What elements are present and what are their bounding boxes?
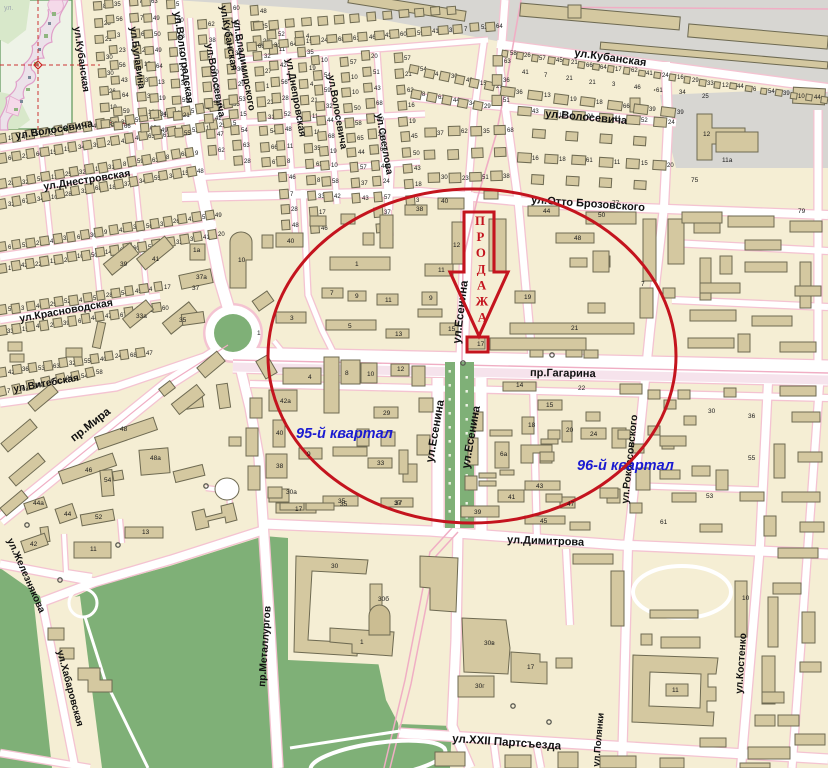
svg-text:18: 18 bbox=[528, 422, 536, 429]
svg-text:11: 11 bbox=[672, 687, 679, 694]
svg-text:52: 52 bbox=[641, 118, 648, 124]
svg-text:О: О bbox=[476, 246, 486, 260]
svg-text:51: 51 bbox=[503, 98, 510, 104]
svg-text:20: 20 bbox=[218, 232, 225, 238]
svg-text:35: 35 bbox=[114, 2, 121, 8]
svg-text:64: 64 bbox=[156, 64, 163, 70]
svg-text:30: 30 bbox=[331, 563, 339, 570]
svg-text:18: 18 bbox=[415, 182, 422, 188]
svg-text:48а: 48а bbox=[150, 455, 161, 462]
svg-text:18: 18 bbox=[596, 100, 603, 106]
svg-text:63: 63 bbox=[151, 0, 158, 5]
svg-text:17: 17 bbox=[477, 341, 485, 348]
svg-text:46: 46 bbox=[321, 226, 328, 232]
svg-text:33: 33 bbox=[377, 460, 385, 467]
svg-text:41: 41 bbox=[522, 70, 529, 76]
svg-text:12: 12 bbox=[397, 366, 405, 373]
svg-text:30: 30 bbox=[708, 408, 716, 415]
svg-text:44: 44 bbox=[814, 95, 821, 101]
svg-text:6а: 6а bbox=[500, 451, 508, 458]
svg-text:30б: 30б bbox=[378, 595, 389, 603]
svg-text:44: 44 bbox=[737, 84, 744, 90]
svg-text:10: 10 bbox=[331, 163, 338, 169]
svg-text:Р: Р bbox=[476, 230, 484, 244]
svg-text:39: 39 bbox=[474, 509, 482, 516]
svg-text:А: А bbox=[478, 311, 488, 325]
svg-text:Д: Д bbox=[477, 262, 486, 276]
svg-text:57: 57 bbox=[350, 60, 357, 66]
svg-text:33: 33 bbox=[707, 81, 714, 87]
svg-text:54: 54 bbox=[241, 128, 248, 134]
svg-text:ул.: ул. bbox=[4, 5, 13, 12]
svg-text:48: 48 bbox=[574, 235, 582, 242]
svg-text:А: А bbox=[477, 278, 487, 292]
svg-text:56: 56 bbox=[116, 17, 123, 23]
svg-text:11а: 11а bbox=[722, 157, 733, 164]
svg-text:19: 19 bbox=[570, 97, 577, 103]
svg-text:11: 11 bbox=[438, 267, 445, 274]
svg-text:15: 15 bbox=[546, 402, 554, 409]
svg-text:66: 66 bbox=[623, 104, 630, 110]
svg-text:49: 49 bbox=[215, 213, 222, 219]
svg-text:17: 17 bbox=[164, 285, 171, 291]
svg-text:59: 59 bbox=[123, 109, 130, 115]
svg-text:24: 24 bbox=[590, 431, 598, 438]
svg-text:57: 57 bbox=[384, 195, 391, 201]
svg-text:61: 61 bbox=[656, 88, 663, 94]
svg-text:21: 21 bbox=[183, 113, 190, 119]
svg-text:62: 62 bbox=[218, 148, 225, 154]
svg-text:13: 13 bbox=[395, 331, 403, 338]
svg-text:13: 13 bbox=[142, 529, 150, 536]
svg-text:62: 62 bbox=[208, 22, 215, 28]
svg-text:79: 79 bbox=[798, 208, 806, 215]
svg-text:29: 29 bbox=[692, 78, 699, 84]
svg-text:30: 30 bbox=[106, 55, 113, 61]
svg-text:18: 18 bbox=[559, 157, 566, 163]
svg-text:48: 48 bbox=[260, 9, 267, 15]
svg-text:53: 53 bbox=[706, 493, 714, 500]
svg-text:60: 60 bbox=[162, 306, 169, 312]
svg-text:20: 20 bbox=[667, 163, 674, 169]
svg-text:56: 56 bbox=[119, 63, 126, 69]
svg-text:11: 11 bbox=[385, 297, 392, 304]
svg-text:10: 10 bbox=[352, 90, 359, 96]
svg-text:49: 49 bbox=[153, 16, 160, 22]
svg-text:23: 23 bbox=[462, 176, 469, 182]
svg-text:66: 66 bbox=[124, 124, 131, 130]
svg-text:5: 5 bbox=[348, 323, 352, 330]
svg-text:42: 42 bbox=[30, 541, 38, 548]
svg-text:1: 1 bbox=[355, 261, 359, 268]
svg-text:49: 49 bbox=[155, 48, 162, 54]
svg-text:37: 37 bbox=[437, 131, 444, 137]
svg-text:44а: 44а bbox=[33, 500, 44, 507]
svg-text:1: 1 bbox=[360, 639, 364, 646]
svg-text:40: 40 bbox=[276, 430, 284, 437]
svg-text:22: 22 bbox=[578, 385, 586, 392]
svg-text:9: 9 bbox=[307, 451, 311, 458]
svg-text:57: 57 bbox=[539, 56, 546, 62]
svg-text:45: 45 bbox=[411, 134, 418, 140]
svg-text:57: 57 bbox=[404, 56, 411, 62]
svg-text:39: 39 bbox=[120, 261, 128, 268]
svg-text:57: 57 bbox=[360, 165, 367, 171]
svg-text:36: 36 bbox=[748, 413, 756, 420]
svg-text:24: 24 bbox=[668, 120, 675, 126]
svg-text:38: 38 bbox=[416, 206, 424, 213]
svg-text:19: 19 bbox=[524, 294, 532, 301]
svg-text:11: 11 bbox=[287, 144, 294, 150]
svg-text:11: 11 bbox=[90, 546, 97, 553]
svg-text:68: 68 bbox=[507, 128, 514, 134]
svg-text:15: 15 bbox=[240, 112, 247, 118]
svg-text:47: 47 bbox=[217, 132, 224, 138]
svg-text:30г: 30г bbox=[475, 683, 485, 690]
svg-text:21: 21 bbox=[589, 80, 596, 86]
svg-text:41: 41 bbox=[508, 494, 516, 501]
svg-text:17: 17 bbox=[527, 664, 535, 671]
svg-text:12: 12 bbox=[703, 131, 711, 138]
svg-text:48: 48 bbox=[197, 169, 204, 175]
svg-text:54: 54 bbox=[104, 477, 112, 484]
svg-text:50: 50 bbox=[154, 32, 161, 38]
svg-text:1: 1 bbox=[257, 330, 261, 337]
svg-text:41: 41 bbox=[152, 256, 160, 263]
svg-text:48: 48 bbox=[285, 127, 292, 133]
svg-text:16: 16 bbox=[532, 156, 539, 162]
svg-text:62: 62 bbox=[631, 68, 638, 74]
svg-text:61: 61 bbox=[660, 519, 668, 526]
svg-text:68: 68 bbox=[376, 101, 383, 107]
svg-text:45: 45 bbox=[556, 58, 563, 64]
svg-text:35: 35 bbox=[340, 501, 348, 508]
svg-text:21: 21 bbox=[571, 60, 578, 66]
svg-text:50: 50 bbox=[413, 151, 420, 157]
svg-text:4: 4 bbox=[308, 374, 312, 381]
svg-text:45: 45 bbox=[540, 518, 548, 525]
svg-text:15: 15 bbox=[641, 161, 648, 167]
svg-text:9: 9 bbox=[429, 295, 433, 302]
svg-text:62: 62 bbox=[461, 129, 468, 135]
svg-text:95-й квартал: 95-й квартал bbox=[296, 426, 393, 442]
svg-text:12: 12 bbox=[453, 242, 461, 249]
svg-text:16: 16 bbox=[677, 75, 684, 81]
svg-text:58: 58 bbox=[96, 370, 103, 376]
svg-text:51: 51 bbox=[482, 175, 489, 181]
svg-text:26: 26 bbox=[524, 53, 531, 59]
svg-text:48: 48 bbox=[292, 223, 299, 229]
svg-text:39: 39 bbox=[649, 107, 656, 113]
svg-text:10: 10 bbox=[367, 371, 375, 378]
svg-text:10: 10 bbox=[351, 75, 358, 81]
svg-text:9: 9 bbox=[355, 293, 359, 300]
svg-text:37: 37 bbox=[395, 500, 403, 507]
svg-text:3: 3 bbox=[290, 315, 294, 322]
svg-text:30в: 30в bbox=[484, 640, 495, 647]
svg-text:28: 28 bbox=[291, 207, 298, 213]
svg-text:39: 39 bbox=[783, 91, 790, 97]
svg-text:64: 64 bbox=[496, 24, 503, 30]
svg-text:20: 20 bbox=[566, 427, 574, 434]
svg-text:29: 29 bbox=[484, 104, 491, 110]
svg-text:52: 52 bbox=[284, 112, 291, 118]
svg-text:47: 47 bbox=[567, 501, 575, 508]
svg-text:17: 17 bbox=[295, 506, 303, 513]
svg-text:48: 48 bbox=[120, 426, 128, 433]
svg-text:40: 40 bbox=[441, 198, 449, 205]
svg-text:пр.Гагарина: пр.Гагарина bbox=[530, 367, 597, 380]
svg-text:13: 13 bbox=[544, 93, 551, 99]
svg-text:65: 65 bbox=[357, 136, 364, 142]
svg-text:63: 63 bbox=[243, 143, 250, 149]
svg-text:43: 43 bbox=[536, 483, 544, 490]
svg-text:16: 16 bbox=[408, 103, 415, 109]
svg-text:38: 38 bbox=[276, 463, 284, 470]
svg-text:43: 43 bbox=[414, 166, 421, 172]
svg-text:25: 25 bbox=[702, 94, 709, 100]
svg-text:77: 77 bbox=[612, 200, 620, 207]
svg-text:10: 10 bbox=[742, 595, 750, 602]
svg-text:44: 44 bbox=[64, 511, 72, 518]
svg-text:Ж: Ж bbox=[476, 295, 489, 309]
svg-text:10: 10 bbox=[798, 94, 805, 100]
svg-text:43: 43 bbox=[121, 78, 128, 84]
svg-text:46: 46 bbox=[85, 467, 93, 474]
svg-text:20: 20 bbox=[371, 54, 378, 60]
svg-text:19: 19 bbox=[159, 96, 166, 102]
svg-text:17: 17 bbox=[615, 67, 622, 73]
svg-text:35: 35 bbox=[307, 50, 314, 56]
svg-text:28: 28 bbox=[244, 159, 251, 165]
svg-text:8: 8 bbox=[345, 370, 349, 377]
svg-text:64: 64 bbox=[122, 93, 129, 99]
svg-text:54: 54 bbox=[768, 89, 775, 95]
svg-text:52: 52 bbox=[95, 514, 103, 521]
svg-text:61: 61 bbox=[586, 158, 593, 164]
svg-text:12: 12 bbox=[722, 83, 729, 89]
svg-text:51: 51 bbox=[373, 70, 380, 76]
svg-text:36: 36 bbox=[503, 78, 510, 84]
svg-text:33а: 33а bbox=[136, 313, 147, 320]
svg-text:64: 64 bbox=[600, 65, 607, 71]
svg-text:14: 14 bbox=[516, 382, 524, 389]
svg-text:29: 29 bbox=[383, 410, 391, 417]
svg-text:60: 60 bbox=[233, 6, 240, 12]
svg-text:75: 75 bbox=[691, 177, 699, 184]
svg-text:43: 43 bbox=[362, 196, 369, 202]
svg-text:44: 44 bbox=[358, 150, 365, 156]
svg-text:10: 10 bbox=[321, 58, 328, 64]
svg-text:47: 47 bbox=[146, 351, 153, 357]
svg-text:42а: 42а bbox=[280, 398, 291, 405]
svg-text:15: 15 bbox=[448, 326, 456, 333]
svg-text:23: 23 bbox=[119, 48, 126, 54]
svg-text:41: 41 bbox=[646, 71, 653, 77]
svg-text:1а: 1а bbox=[193, 247, 201, 254]
svg-text:17: 17 bbox=[319, 210, 326, 216]
svg-text:19: 19 bbox=[409, 119, 416, 125]
svg-text:30: 30 bbox=[441, 175, 448, 181]
svg-text:40: 40 bbox=[287, 238, 295, 245]
svg-text:38: 38 bbox=[503, 174, 510, 180]
svg-text:46: 46 bbox=[289, 175, 296, 181]
svg-text:35: 35 bbox=[483, 129, 490, 135]
svg-text:24: 24 bbox=[383, 179, 390, 185]
svg-text:7: 7 bbox=[330, 290, 334, 297]
svg-text:21: 21 bbox=[566, 76, 573, 82]
svg-text:10: 10 bbox=[238, 257, 246, 264]
svg-text:П: П bbox=[475, 214, 485, 228]
svg-text:35: 35 bbox=[179, 317, 187, 324]
svg-text:43: 43 bbox=[532, 109, 539, 115]
svg-text:37: 37 bbox=[361, 181, 368, 187]
svg-text:34: 34 bbox=[679, 90, 686, 96]
svg-text:55: 55 bbox=[748, 455, 756, 462]
svg-text:36: 36 bbox=[516, 90, 523, 96]
svg-text:43: 43 bbox=[374, 86, 381, 92]
svg-text:28: 28 bbox=[282, 96, 289, 102]
svg-text:11: 11 bbox=[614, 160, 621, 166]
svg-text:63: 63 bbox=[504, 59, 511, 65]
svg-text:37: 37 bbox=[192, 285, 200, 292]
svg-text:39: 39 bbox=[677, 110, 684, 116]
svg-text:34: 34 bbox=[160, 112, 167, 118]
svg-text:7: 7 bbox=[641, 281, 645, 288]
svg-text:24: 24 bbox=[662, 73, 669, 79]
svg-text:55: 55 bbox=[184, 131, 191, 137]
svg-text:58: 58 bbox=[332, 179, 339, 185]
svg-text:49: 49 bbox=[161, 128, 168, 134]
svg-text:68: 68 bbox=[328, 134, 335, 140]
svg-text:19: 19 bbox=[330, 149, 337, 155]
svg-text:50: 50 bbox=[598, 212, 606, 219]
svg-text:30а: 30а bbox=[286, 489, 297, 496]
svg-text:50: 50 bbox=[354, 106, 361, 112]
svg-text:13: 13 bbox=[158, 80, 165, 86]
svg-text:37а: 37а bbox=[196, 274, 207, 281]
svg-text:46: 46 bbox=[634, 85, 641, 91]
svg-text:44: 44 bbox=[543, 208, 551, 215]
svg-text:52: 52 bbox=[278, 32, 285, 38]
svg-text:58: 58 bbox=[355, 121, 362, 127]
svg-text:21: 21 bbox=[571, 325, 579, 332]
svg-text:42: 42 bbox=[334, 194, 341, 200]
